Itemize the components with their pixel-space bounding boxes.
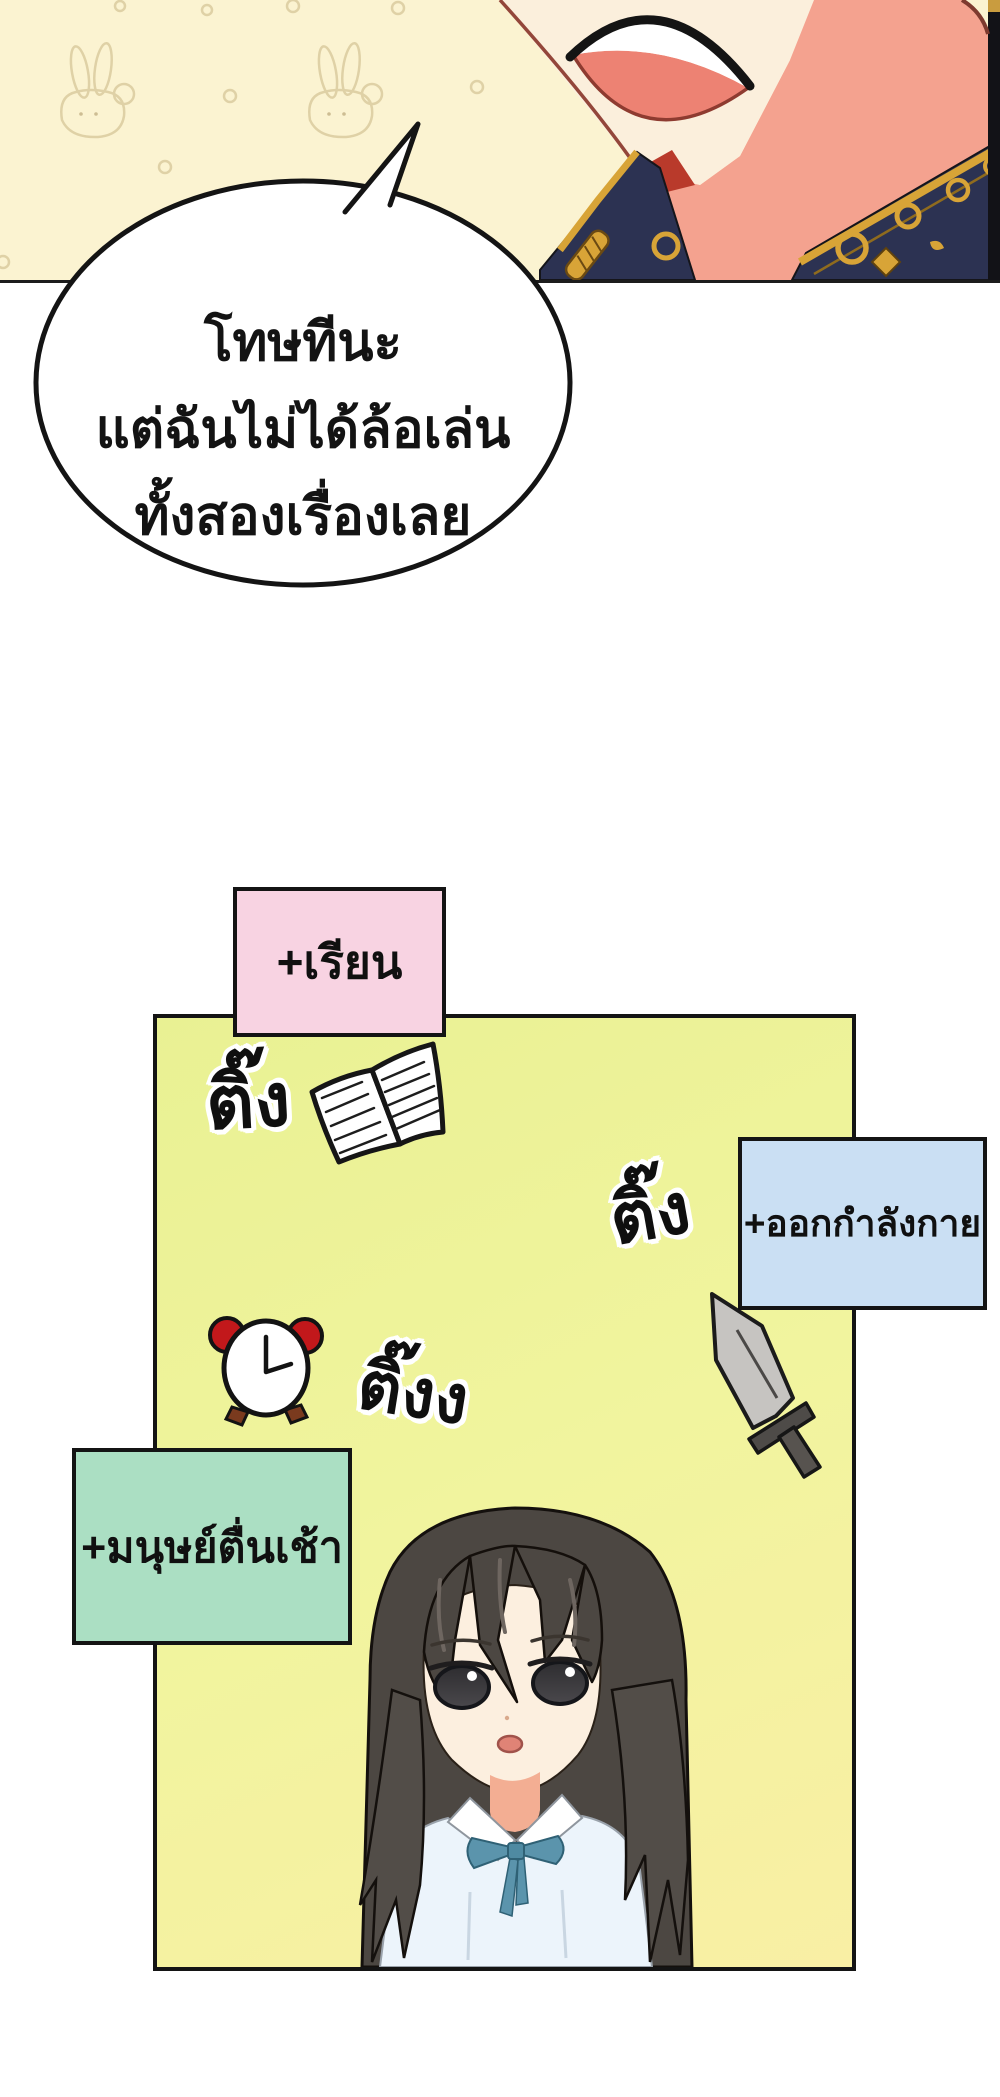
stat-tag-early-riser: +มนุษย์ตื่นเช้า [72,1448,352,1645]
stat-tag-study-label: +เรียน [277,926,403,999]
stat-tag-study: +เรียน [233,887,446,1037]
girl-mouth [498,1736,522,1752]
girl-character-art [360,1508,692,1967]
sword-icon [712,1294,820,1477]
speech-line: โทษทีนะ [40,300,566,387]
speech-line: แต่ฉันไม่ได้ล้อเล่น [40,387,566,474]
stat-tag-exercise: +ออกกำลังกาย [738,1137,987,1310]
stat-tag-exercise-label: +ออกกำลังกาย [744,1194,981,1253]
open-book-icon [312,1044,443,1162]
sfx-ting-clock: ติ๊งง [350,1330,476,1454]
speech-bubble-text: โทษทีนะ แต่ฉันไม่ได้ล้อเล่น ทั้งสองเรื่อ… [40,300,566,561]
stat-tag-early-riser-label: +มนุษย์ตื่นเช้า [81,1513,343,1581]
comic-page: โทษทีนะ แต่ฉันไม่ได้ล้อเล่น ทั้งสองเรื่อ… [0,0,1000,2097]
alarm-clock-icon [210,1318,322,1425]
sfx-ting-book: ติ๊ง [203,1040,293,1162]
speech-line: ทั้งสองเรื่องเลย [40,474,566,561]
